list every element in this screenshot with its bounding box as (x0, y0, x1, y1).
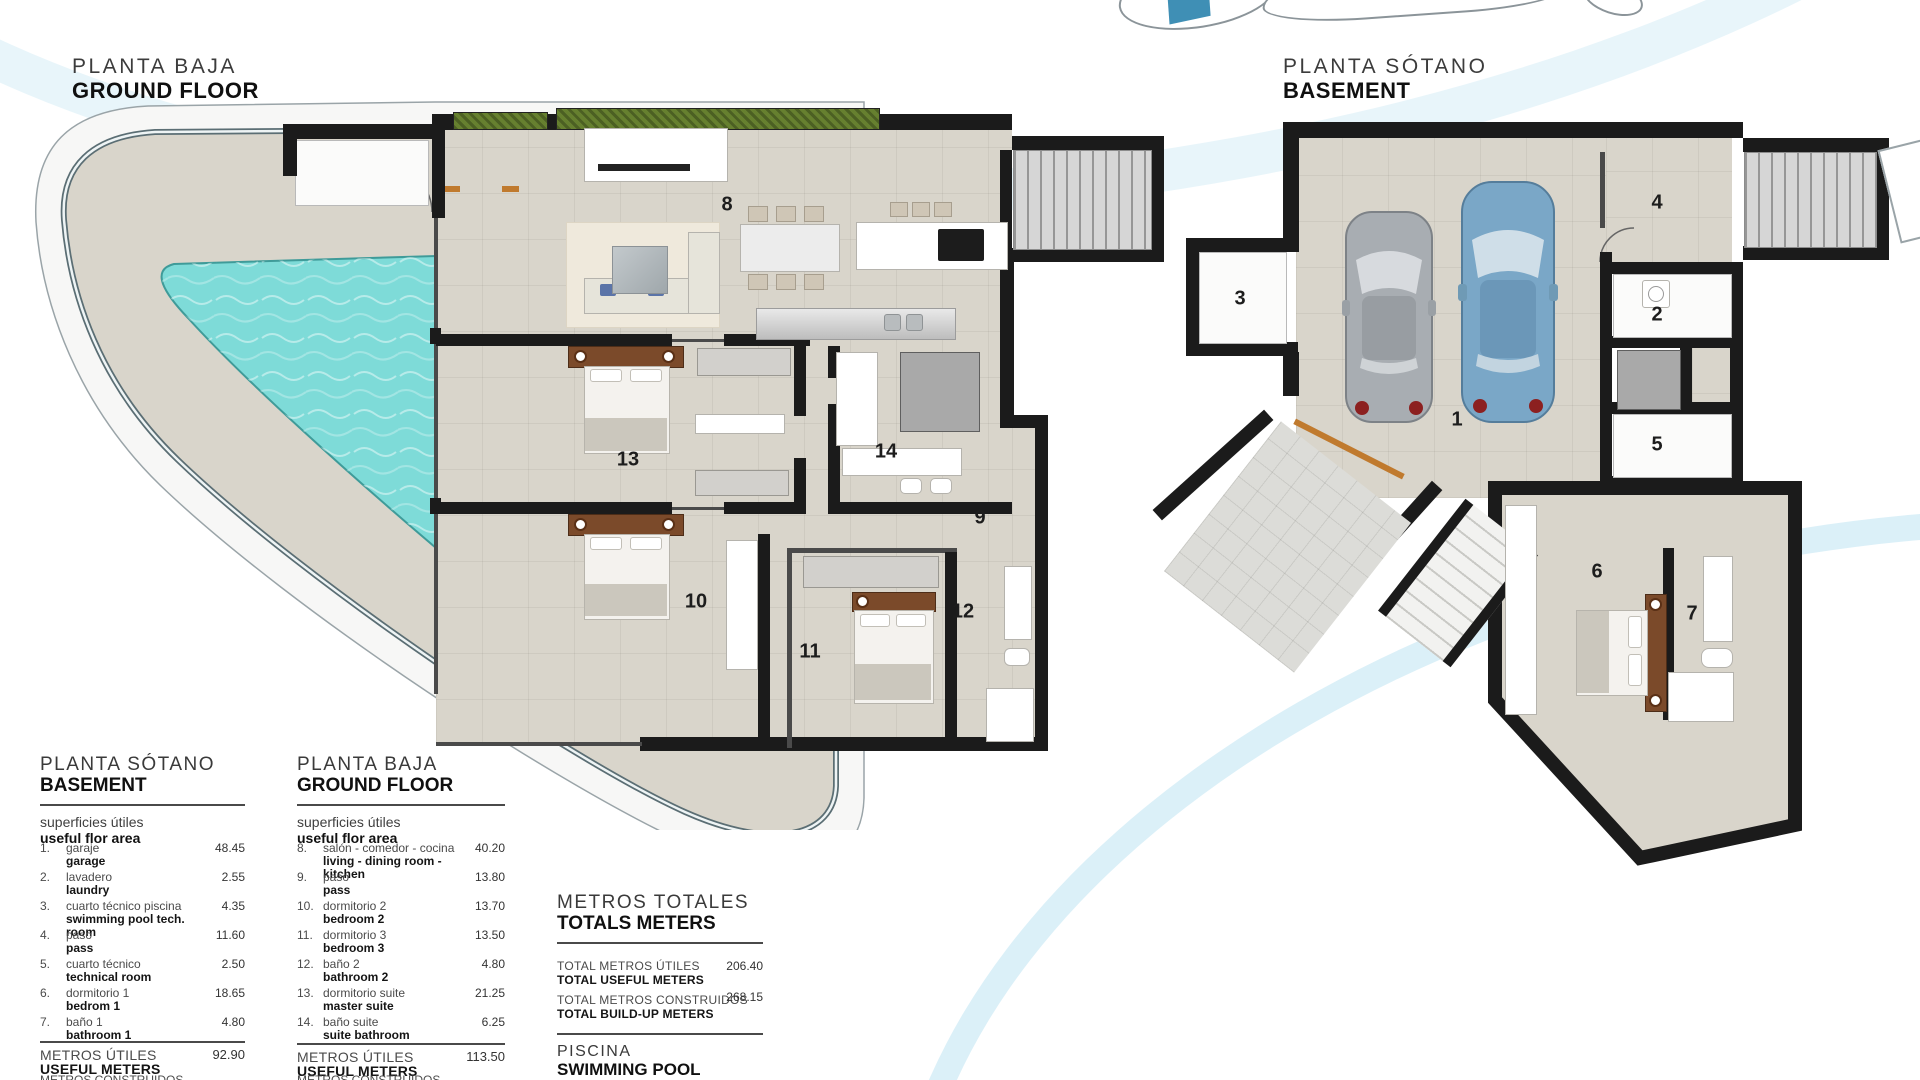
rule (297, 804, 505, 806)
bath1-shower (1668, 672, 1734, 722)
wardrobe (726, 540, 758, 670)
legend-basement-cut-row: METROS CONSTRUIDOS (40, 1073, 245, 1080)
room-label-12: 12 (952, 601, 974, 624)
legend-total-row: METROS ÚTILES USEFUL METERS 92.90 (40, 1048, 245, 1076)
tv (598, 164, 690, 171)
legend-pool: PISCINA SWIMMING POOL (557, 1043, 763, 1080)
pool-title-en: SWIMMING POOL (557, 1061, 763, 1080)
room-label-10: 10 (685, 591, 707, 614)
room-label-13: 13 (617, 449, 639, 472)
planter-strip-long (556, 108, 880, 130)
tall-cabinet (836, 352, 878, 446)
car-gray (1342, 208, 1436, 426)
legend-basement: PLANTA SÓTANO BASEMENT superficies útile… (40, 755, 245, 1080)
rule (557, 1033, 763, 1035)
room-label-2: 2 (1651, 304, 1662, 327)
entry-door-frame-2 (502, 186, 519, 192)
basement-stairs-wall-top (1743, 138, 1889, 152)
basement-title-en: BASEMENT (1283, 79, 1487, 103)
ground-stairs-wall-top (1012, 136, 1164, 150)
room-label-1: 1 (1451, 409, 1462, 432)
dining-chair (776, 274, 796, 290)
dining-chair (748, 206, 768, 222)
hob (938, 229, 984, 261)
washing-machine-drum (1648, 286, 1664, 302)
rule (40, 804, 245, 806)
totals-title-es: METROS TOTALES (557, 893, 763, 914)
shelf (695, 414, 785, 434)
basement-stairs (1744, 152, 1877, 248)
bath2-vanity (1004, 566, 1032, 640)
sink (906, 314, 923, 331)
technical-room-floor (1613, 414, 1732, 478)
rule (40, 1041, 245, 1043)
small-thumbnail (1579, 0, 1648, 23)
sink (884, 314, 901, 331)
legend-ground-title-en: GROUND FLOOR (297, 776, 505, 797)
room-label-6: 6 (1591, 561, 1602, 584)
vanity (842, 448, 962, 476)
legend-basement-title-en: BASEMENT (40, 776, 245, 797)
ground-floor-title: PLANTA BAJA GROUND FLOOR (72, 56, 259, 102)
ground-floor-title-es: PLANTA BAJA (72, 56, 259, 79)
porch-wall (283, 124, 439, 139)
room-label-5: 5 (1651, 434, 1662, 457)
bath1-vanity (1703, 556, 1733, 642)
totals-title-en: TOTALS METERS (557, 914, 763, 935)
dining-table (740, 224, 840, 272)
pool-title-es: PISCINA (557, 1043, 763, 1061)
coffee-table (612, 246, 668, 294)
laundry-floor (1613, 274, 1732, 338)
dining-chair (804, 274, 824, 290)
legend-sub-es: superficies útiles (40, 814, 245, 830)
sofa-chaise (688, 232, 720, 314)
entry-porch (295, 140, 429, 206)
porch-wall-left (283, 124, 297, 176)
rule (557, 942, 763, 944)
wardrobe (1505, 505, 1537, 715)
legend-ground-title-es: PLANTA BAJA (297, 755, 505, 776)
wardrobe (697, 348, 791, 376)
planter-strip-small (453, 112, 548, 130)
legend-basement-title-es: PLANTA SÓTANO (40, 755, 245, 776)
bar-stool (912, 202, 930, 217)
dining-chair (804, 206, 824, 222)
car-blue (1458, 178, 1558, 426)
bidet (930, 478, 952, 494)
entry-door-frame (443, 186, 460, 192)
rule (297, 1043, 505, 1045)
floorplan-sheet: PLANTA BAJA GROUND FLOOR PLANTA SÓTANO B… (0, 0, 1920, 1080)
site-plan-thumbnail (1261, 0, 1567, 27)
room-label-9: 9 (974, 507, 985, 530)
legend-sub-es: superficies útiles (297, 814, 505, 830)
totals-row-useful: TOTAL METROS ÚTILES TOTAL USEFUL METERS … (557, 959, 763, 987)
kitchen-counter (756, 308, 956, 340)
tv-niche (584, 128, 728, 182)
room-label-3: 3 (1234, 288, 1245, 311)
ground-stairs (1013, 150, 1152, 250)
ground-stairs-wall-right (1150, 136, 1164, 262)
dining-chair (748, 274, 768, 290)
bar-stool (890, 202, 908, 217)
bath2-shower (986, 688, 1034, 742)
totals-row-built: TOTAL METROS CONSTRUIDOS TOTAL BUILD-UP … (557, 993, 763, 1021)
kitchen-island (856, 222, 1008, 270)
machine-box (1617, 350, 1681, 410)
bar-stool (934, 202, 952, 217)
bath2-toilet (1004, 648, 1030, 666)
legend-ground: PLANTA BAJA GROUND FLOOR superficies úti… (297, 755, 505, 1080)
basement-title-es: PLANTA SÓTANO (1283, 56, 1487, 79)
ground-floor-title-en: GROUND FLOOR (72, 79, 259, 103)
toilet (900, 478, 922, 494)
basement-stairs-wall-bottom (1743, 246, 1889, 260)
room-label-11: 11 (799, 641, 820, 664)
legend-ground-cut-row: METROS CONSTRUIDOS (297, 1073, 505, 1080)
shower (900, 352, 980, 432)
dining-chair (776, 206, 796, 222)
room-label-14: 14 (875, 441, 897, 464)
dresser (695, 470, 789, 496)
room-label-7: 7 (1686, 603, 1697, 626)
room-label-8: 8 (721, 194, 732, 217)
bath1-toilet (1701, 648, 1733, 668)
basement-title: PLANTA SÓTANO BASEMENT (1283, 56, 1487, 102)
ground-stairs-wall-bottom (1012, 248, 1164, 262)
room-label-4: 4 (1651, 192, 1662, 215)
closet (803, 556, 939, 588)
